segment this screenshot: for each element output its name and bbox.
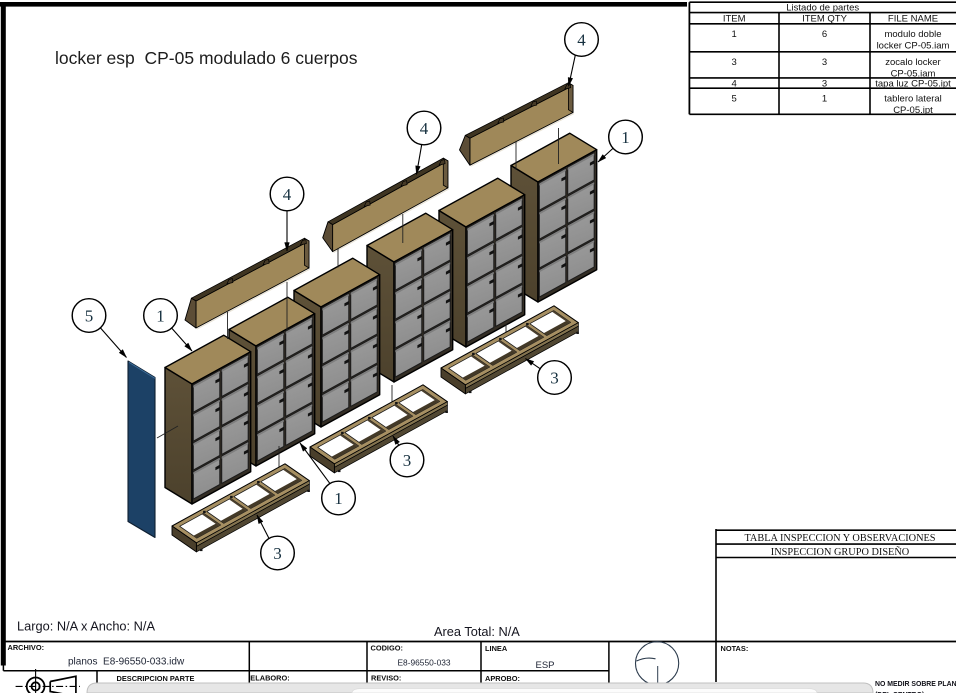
svg-text:5: 5 <box>85 306 94 325</box>
svg-text:tablero lateral: tablero lateral <box>884 94 942 105</box>
svg-text:locker CP-05.iam: locker CP-05.iam <box>877 41 950 52</box>
svg-text:1: 1 <box>621 128 630 147</box>
svg-text:locker esp CP-05 modulado 6 c: locker esp CP-05 modulado 6 cuerpos <box>55 48 358 68</box>
svg-text:planos E8-96550-033.idw: planos E8-96550-033.idw <box>68 657 185 668</box>
svg-text:ITEM: ITEM <box>723 13 746 24</box>
svg-text:tapa luz CP-05.ipt: tapa luz CP-05.ipt <box>875 79 951 90</box>
svg-text:6: 6 <box>822 29 827 40</box>
svg-text:modulo doble: modulo doble <box>884 29 941 40</box>
svg-text:ARCHIVO:: ARCHIVO: <box>8 643 45 652</box>
svg-text:CODIGO:: CODIGO: <box>371 643 403 652</box>
svg-text:1: 1 <box>732 29 737 40</box>
svg-text:NOTAS:: NOTAS: <box>721 644 749 653</box>
svg-text:TABLA INSPECCION Y OBSERVACION: TABLA INSPECCION Y OBSERVACIONES <box>744 533 935 544</box>
svg-text:ELABORO:: ELABORO: <box>250 674 289 683</box>
svg-text:ITEM QTY: ITEM QTY <box>802 13 848 24</box>
svg-text:3: 3 <box>273 544 282 563</box>
svg-text:E8-96550-033: E8-96550-033 <box>397 657 450 667</box>
svg-text:Listado de partes: Listado de partes <box>786 3 859 14</box>
svg-text:FILE NAME: FILE NAME <box>888 13 938 24</box>
svg-text:DESCRIPCION PARTE: DESCRIPCION PARTE <box>117 674 195 683</box>
svg-text:NO MEDIR SOBRE PLAN: NO MEDIR SOBRE PLAN <box>875 681 956 688</box>
svg-text:3: 3 <box>822 79 827 90</box>
svg-text:3: 3 <box>403 451 412 470</box>
svg-text:LINEA: LINEA <box>485 644 508 653</box>
svg-text:4: 4 <box>283 185 292 204</box>
svg-text:INSPECCION GRUPO DISEÑO: INSPECCION GRUPO DISEÑO <box>771 546 910 558</box>
svg-text:4: 4 <box>577 30 586 49</box>
svg-text:ESP: ESP <box>535 660 554 671</box>
svg-text:3: 3 <box>732 57 737 68</box>
svg-text:CP-05.ipt: CP-05.ipt <box>893 105 933 116</box>
svg-text:5: 5 <box>732 94 737 105</box>
svg-text:1: 1 <box>156 306 165 325</box>
svg-text:REVISO:: REVISO: <box>371 674 401 683</box>
svg-text:APROBO:: APROBO: <box>485 674 520 683</box>
svg-text:Largo: N/A x Ancho: N/A: Largo: N/A x Ancho: N/A <box>17 619 155 634</box>
svg-text:4: 4 <box>732 79 737 90</box>
svg-text:4: 4 <box>420 119 429 138</box>
svg-text:1: 1 <box>334 489 343 508</box>
svg-text:Area Total: N/A: Area Total: N/A <box>434 624 520 639</box>
svg-text:1: 1 <box>822 94 827 105</box>
svg-text:3: 3 <box>822 57 827 68</box>
svg-text:3: 3 <box>550 368 559 387</box>
svg-text:zocalo locker: zocalo locker <box>885 57 940 68</box>
